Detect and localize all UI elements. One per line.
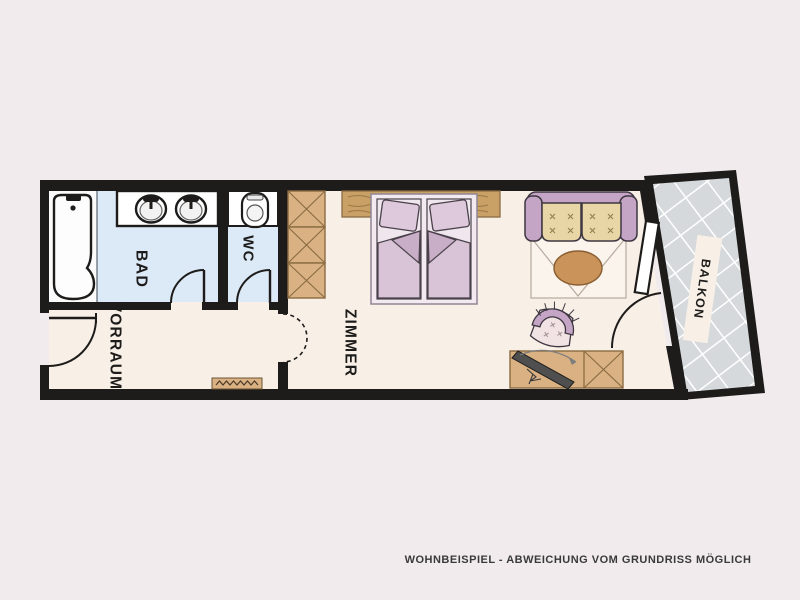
bathtub <box>54 194 94 299</box>
desk <box>510 350 623 389</box>
coffee-table <box>554 251 602 285</box>
bathtub-drain-icon <box>70 205 75 210</box>
wc-label: WC <box>240 235 257 262</box>
vanity-double-sink <box>117 191 218 226</box>
sink-right-icon <box>176 196 206 223</box>
wall-vorraum-zimmer-stub <box>278 362 288 389</box>
wall-top <box>40 180 650 191</box>
floor-plan-page: BAD WC VORRAUM ZIMMER BALKON WOHNBEISPIE… <box>0 0 800 600</box>
wardrobe <box>288 191 325 298</box>
sink-left-icon <box>136 196 166 223</box>
wall-left-upper <box>40 180 49 313</box>
bedroom-label: ZIMMER <box>342 309 359 377</box>
wall-bad-wc <box>218 191 228 310</box>
bathroom-label: BAD <box>133 250 150 288</box>
sofa <box>525 192 637 241</box>
wall-wc-zimmer <box>278 191 288 314</box>
hallway-label: VORRAUM <box>107 302 124 390</box>
sofa-cushions <box>542 203 621 241</box>
disclaimer-caption: WOHNBEISPIEL - ABWEICHUNG VOM GRUNDRISS … <box>405 553 752 566</box>
floor-plan-canvas: BAD WC VORRAUM ZIMMER BALKON WOHNBEISPIE… <box>0 0 800 600</box>
radiator <box>212 378 262 389</box>
toilet <box>228 191 278 227</box>
wall-bottom <box>40 389 688 400</box>
bathtub-faucet-icon <box>66 194 81 201</box>
